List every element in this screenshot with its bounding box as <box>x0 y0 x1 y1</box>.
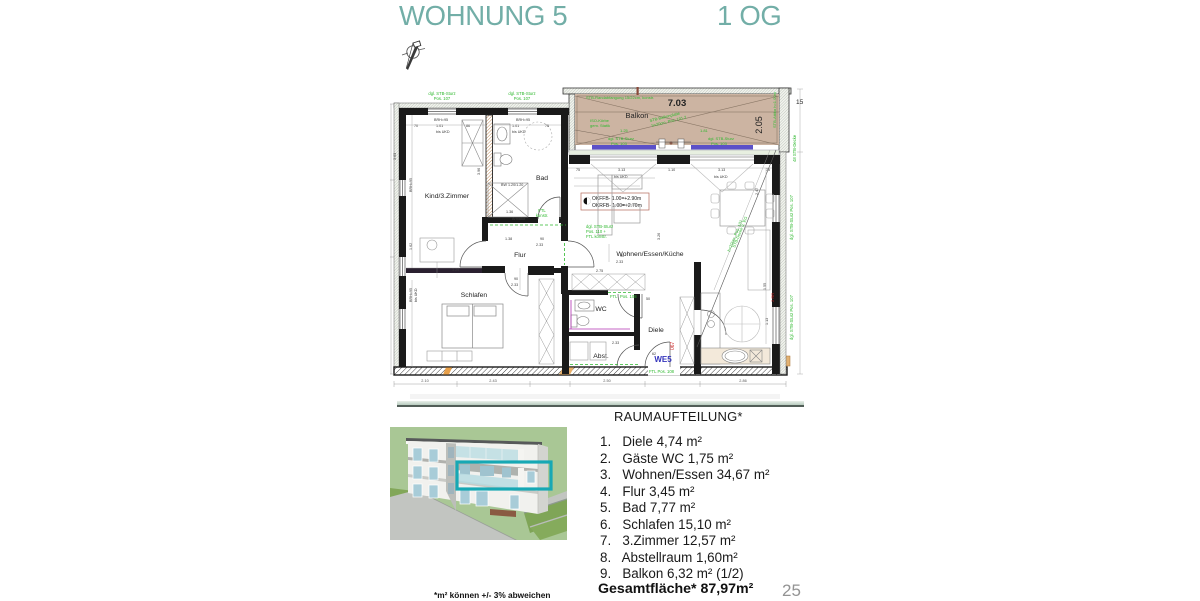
svg-text:3.13: 3.13 <box>618 168 625 172</box>
svg-text:WC: WC <box>595 306 606 313</box>
svg-text:1.10: 1.10 <box>668 168 675 172</box>
svg-text:BRH=95: BRH=95 <box>516 118 530 122</box>
svg-text:75: 75 <box>545 124 549 128</box>
svg-text:90: 90 <box>620 254 624 258</box>
svg-text:90: 90 <box>514 277 518 281</box>
svg-text:2.10: 2.10 <box>421 379 428 383</box>
svg-text:1.38: 1.38 <box>505 237 512 241</box>
svg-text:90: 90 <box>540 237 544 241</box>
svg-text:dgl. STB-Sturz Pos. 107: dgl. STB-Sturz Pos. 107 <box>789 194 794 240</box>
svg-text:bis UKD: bis UKD <box>512 130 526 134</box>
svg-text:bis UKD: bis UKD <box>414 288 418 302</box>
svg-text:1.25: 1.25 <box>620 128 629 133</box>
svg-text:STB-Attika h=1.00m: STB-Attika h=1.00m <box>772 91 777 128</box>
svg-text:2.05: 2.05 <box>754 116 764 134</box>
svg-text:Flur: Flur <box>514 252 526 259</box>
svg-text:Abst.: Abst. <box>593 353 609 360</box>
svg-text:2.33: 2.33 <box>536 243 543 247</box>
svg-text:BRH=95: BRH=95 <box>434 118 448 122</box>
svg-text:1.36: 1.36 <box>506 210 513 214</box>
svg-text:Balkon: Balkon <box>626 111 649 120</box>
svg-text:OKFFB- 1.00=+2.90m: OKFFB- 1.00=+2.90m <box>592 196 641 202</box>
svg-text:2.43: 2.43 <box>489 379 496 383</box>
svg-text:Bad: Bad <box>536 175 548 182</box>
svg-text:3.96: 3.96 <box>477 168 481 175</box>
svg-text:2.50: 2.50 <box>603 379 610 383</box>
svg-text:FTL Pos. 108: FTL Pos. 108 <box>649 369 675 374</box>
svg-text:75: 75 <box>766 168 770 172</box>
svg-text:1.13: 1.13 <box>765 318 769 325</box>
svg-text:1.55: 1.55 <box>763 283 767 290</box>
svg-text:50: 50 <box>646 297 650 301</box>
svg-text:BRH=95: BRH=95 <box>409 178 413 192</box>
svg-text:bis UKD: bis UKD <box>614 175 628 179</box>
svg-text:1.01: 1.01 <box>436 124 443 128</box>
svg-text:067: 067 <box>670 341 676 350</box>
svg-text:bis UKD: bis UKD <box>714 175 728 179</box>
svg-text:Pos. 107: Pos. 107 <box>434 96 451 101</box>
svg-text:gem. Statik: gem. Statik <box>590 123 610 128</box>
svg-text:75: 75 <box>576 168 580 172</box>
svg-text:70: 70 <box>414 124 418 128</box>
svg-text:2.86: 2.86 <box>739 379 746 383</box>
svg-text:Schlafen: Schlafen <box>461 292 488 299</box>
svg-text:86: 86 <box>466 124 470 128</box>
svg-text:1.01: 1.01 <box>512 124 519 128</box>
svg-text:dgl. STB-Sturz Pos. 107: dgl. STB-Sturz Pos. 107 <box>789 294 794 340</box>
svg-text:2.33: 2.33 <box>616 260 623 264</box>
svg-text:WE5: WE5 <box>654 355 672 364</box>
svg-text:Pos. 107: Pos. 107 <box>514 96 531 101</box>
svg-text:3.63: 3.63 <box>393 153 397 160</box>
svg-text:2 RR: 2 RR <box>770 293 775 302</box>
svg-text:62: 62 <box>652 352 656 356</box>
svg-text:Armatur: Armatur <box>512 217 526 221</box>
svg-text:2.47: 2.47 <box>755 188 759 195</box>
svg-text:2.33: 2.33 <box>612 341 619 345</box>
svg-text:3.13: 3.13 <box>718 168 725 172</box>
svg-text:2.33: 2.33 <box>511 283 518 287</box>
svg-text:Pos. 108: Pos. 108 <box>620 294 637 299</box>
svg-text:Wohnen/Essen/Küche: Wohnen/Essen/Küche <box>616 251 683 258</box>
svg-text:3.26: 3.26 <box>657 233 661 240</box>
svg-text:Kind/3.Zimmer: Kind/3.Zimmer <box>425 193 470 200</box>
svg-text:FTL konstr.: FTL konstr. <box>586 234 607 239</box>
svg-text:BRH=95: BRH=95 <box>409 288 413 302</box>
svg-text:OKRFB- 1.00=+2.70m: OKRFB- 1.00=+2.70m <box>592 203 642 209</box>
svg-text:48 STB-Decke: 48 STB-Decke <box>792 134 797 162</box>
svg-text:7.03: 7.03 <box>668 98 687 109</box>
svg-text:2.75: 2.75 <box>596 269 603 273</box>
svg-text:BW 1.20/1.20: BW 1.20/1.20 <box>501 183 523 187</box>
svg-text:STB-Randabfangung 15/22cm, kon: STB-Randabfangung 15/22cm, konstr. <box>586 95 654 100</box>
svg-text:FTL: FTL <box>610 294 618 299</box>
svg-text:Diele: Diele <box>648 327 664 334</box>
svg-text:bis UKD: bis UKD <box>436 130 450 134</box>
svg-text:1.62: 1.62 <box>409 243 413 250</box>
svg-text:1.81: 1.81 <box>700 128 709 133</box>
svg-text:konstr.: konstr. <box>536 213 548 218</box>
svg-text:3.29: 3.29 <box>452 268 459 272</box>
